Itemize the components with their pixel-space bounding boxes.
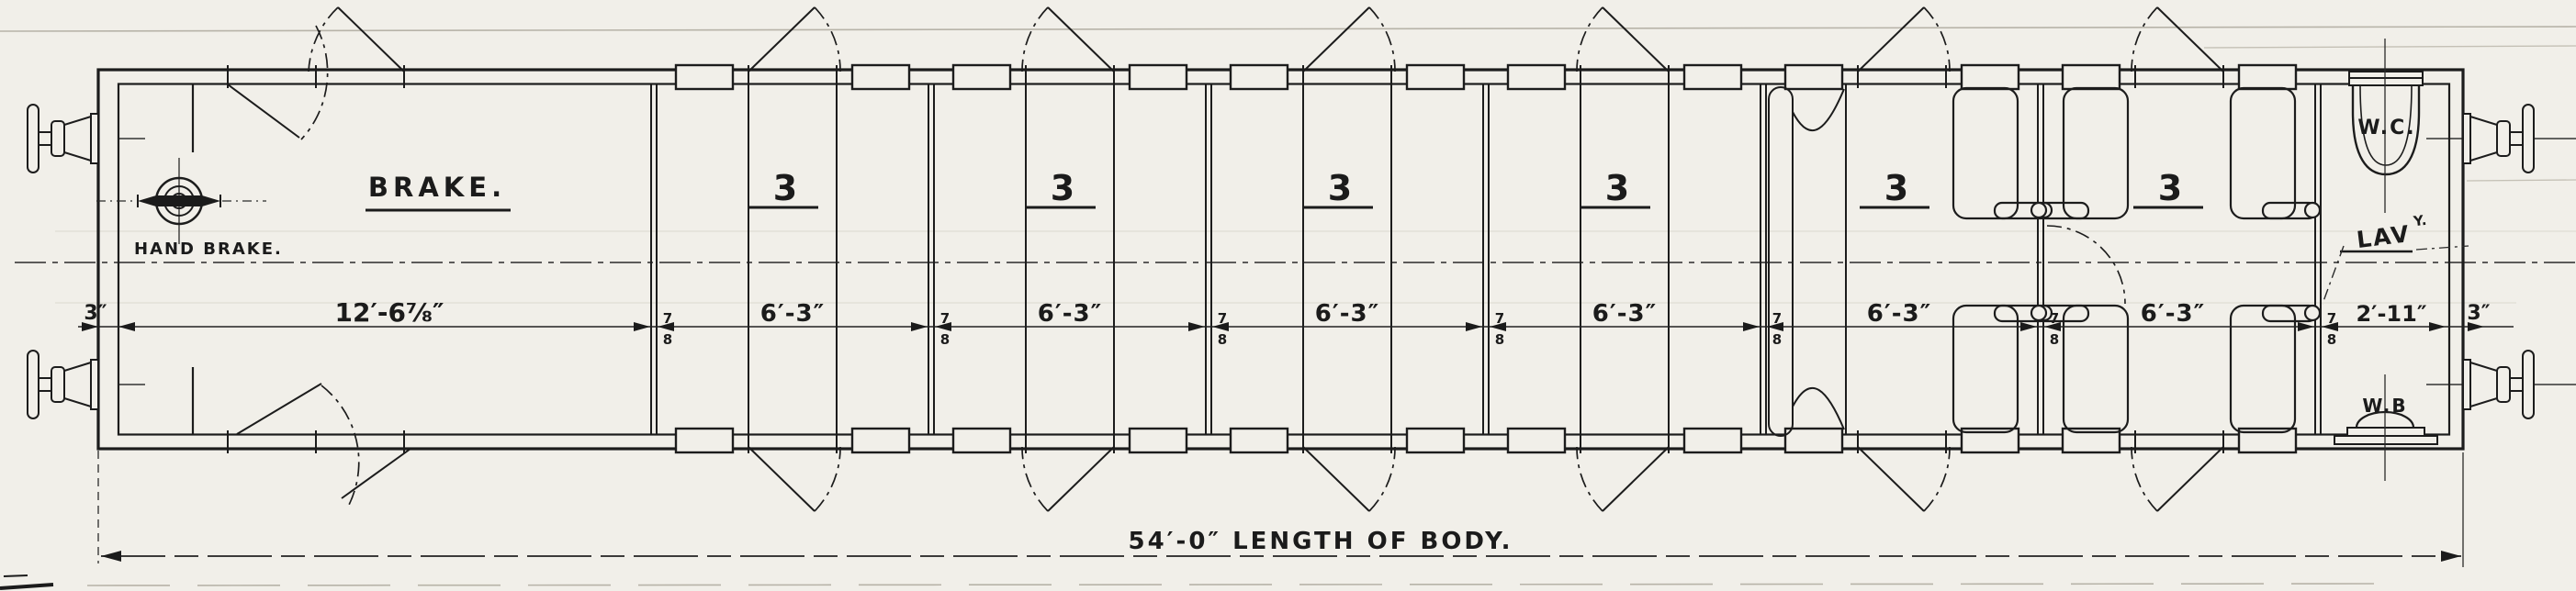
compartment-class-label: 3	[2158, 168, 2184, 208]
svg-text:8: 8	[663, 331, 672, 348]
svg-text:8: 8	[1772, 331, 1782, 348]
window	[1130, 65, 1187, 89]
svg-text:7: 7	[1495, 310, 1504, 327]
compartment-class-label: 3	[1884, 168, 1910, 208]
compartment-width-dim: 6′-3″	[1315, 300, 1379, 328]
compartment-width-dim: 6′-3″	[2141, 300, 2205, 328]
window	[1684, 429, 1741, 452]
end-wall-dim: 3″	[2467, 302, 2490, 325]
window	[1962, 65, 2019, 89]
window	[852, 65, 909, 89]
window	[1407, 429, 1464, 452]
window	[1684, 65, 1741, 89]
armrest-knob	[2305, 306, 2320, 320]
svg-text:8: 8	[1495, 331, 1504, 348]
window	[1130, 429, 1187, 452]
end-wall-dim: 3″	[84, 302, 107, 325]
svg-text:8: 8	[2050, 331, 2059, 348]
window	[1785, 429, 1842, 452]
compartment-class-label: 3	[1051, 168, 1076, 208]
window	[1508, 65, 1565, 89]
armrest-knob	[2031, 203, 2046, 217]
compartment-width-dim: 6′-3″	[1592, 300, 1657, 328]
wc-label: W.C.	[2357, 117, 2415, 139]
svg-text:7: 7	[940, 310, 950, 327]
svg-text:8: 8	[1218, 331, 1227, 348]
window	[1231, 65, 1288, 89]
window	[852, 429, 909, 452]
window	[1508, 429, 1565, 452]
compartment-class-label: 3	[1328, 168, 1354, 208]
svg-text:7: 7	[2050, 310, 2059, 327]
wb-label: W.B	[2362, 395, 2407, 417]
compartment-class-label: 3	[1605, 168, 1631, 208]
body-length-label: 54′-0″ LENGTH OF BODY.	[1128, 528, 1513, 555]
compartment-width-dim: 6′-3″	[1867, 300, 1931, 328]
compartment-class-label: 3	[773, 168, 799, 208]
window	[1407, 65, 1464, 89]
svg-text:7: 7	[1772, 310, 1782, 327]
drawing-sheet: 54′-0″ LENGTH OF BODY.	[0, 0, 2576, 591]
window	[676, 429, 733, 452]
window	[953, 65, 1010, 89]
brake-width-dim: 12′-6⅞″	[335, 297, 444, 328]
brake-label: BRAKE.	[368, 172, 506, 203]
window	[953, 429, 1010, 452]
armrest-knob	[2305, 203, 2320, 217]
hand-brake-label: HAND BRAKE.	[134, 240, 283, 259]
svg-text:7: 7	[1218, 310, 1227, 327]
window	[1231, 429, 1288, 452]
window	[676, 65, 733, 89]
carriage-plan-drawing: 54′-0″ LENGTH OF BODY.	[0, 0, 2576, 591]
lav-label-superscript: Y.	[2412, 212, 2427, 230]
svg-text:8: 8	[940, 331, 950, 348]
window	[2063, 65, 2120, 89]
compartment-width-dim: 6′-3″	[1038, 300, 1102, 328]
armrest-knob	[2031, 306, 2046, 320]
compartment-width-dim: 6′-3″	[760, 300, 825, 328]
svg-text:7: 7	[2327, 310, 2336, 327]
svg-text:8: 8	[2327, 331, 2336, 348]
svg-text:7: 7	[663, 310, 672, 327]
window	[2239, 65, 2296, 89]
lavatory-width-dim: 2′-11″	[2356, 301, 2426, 327]
window	[1785, 65, 1842, 89]
